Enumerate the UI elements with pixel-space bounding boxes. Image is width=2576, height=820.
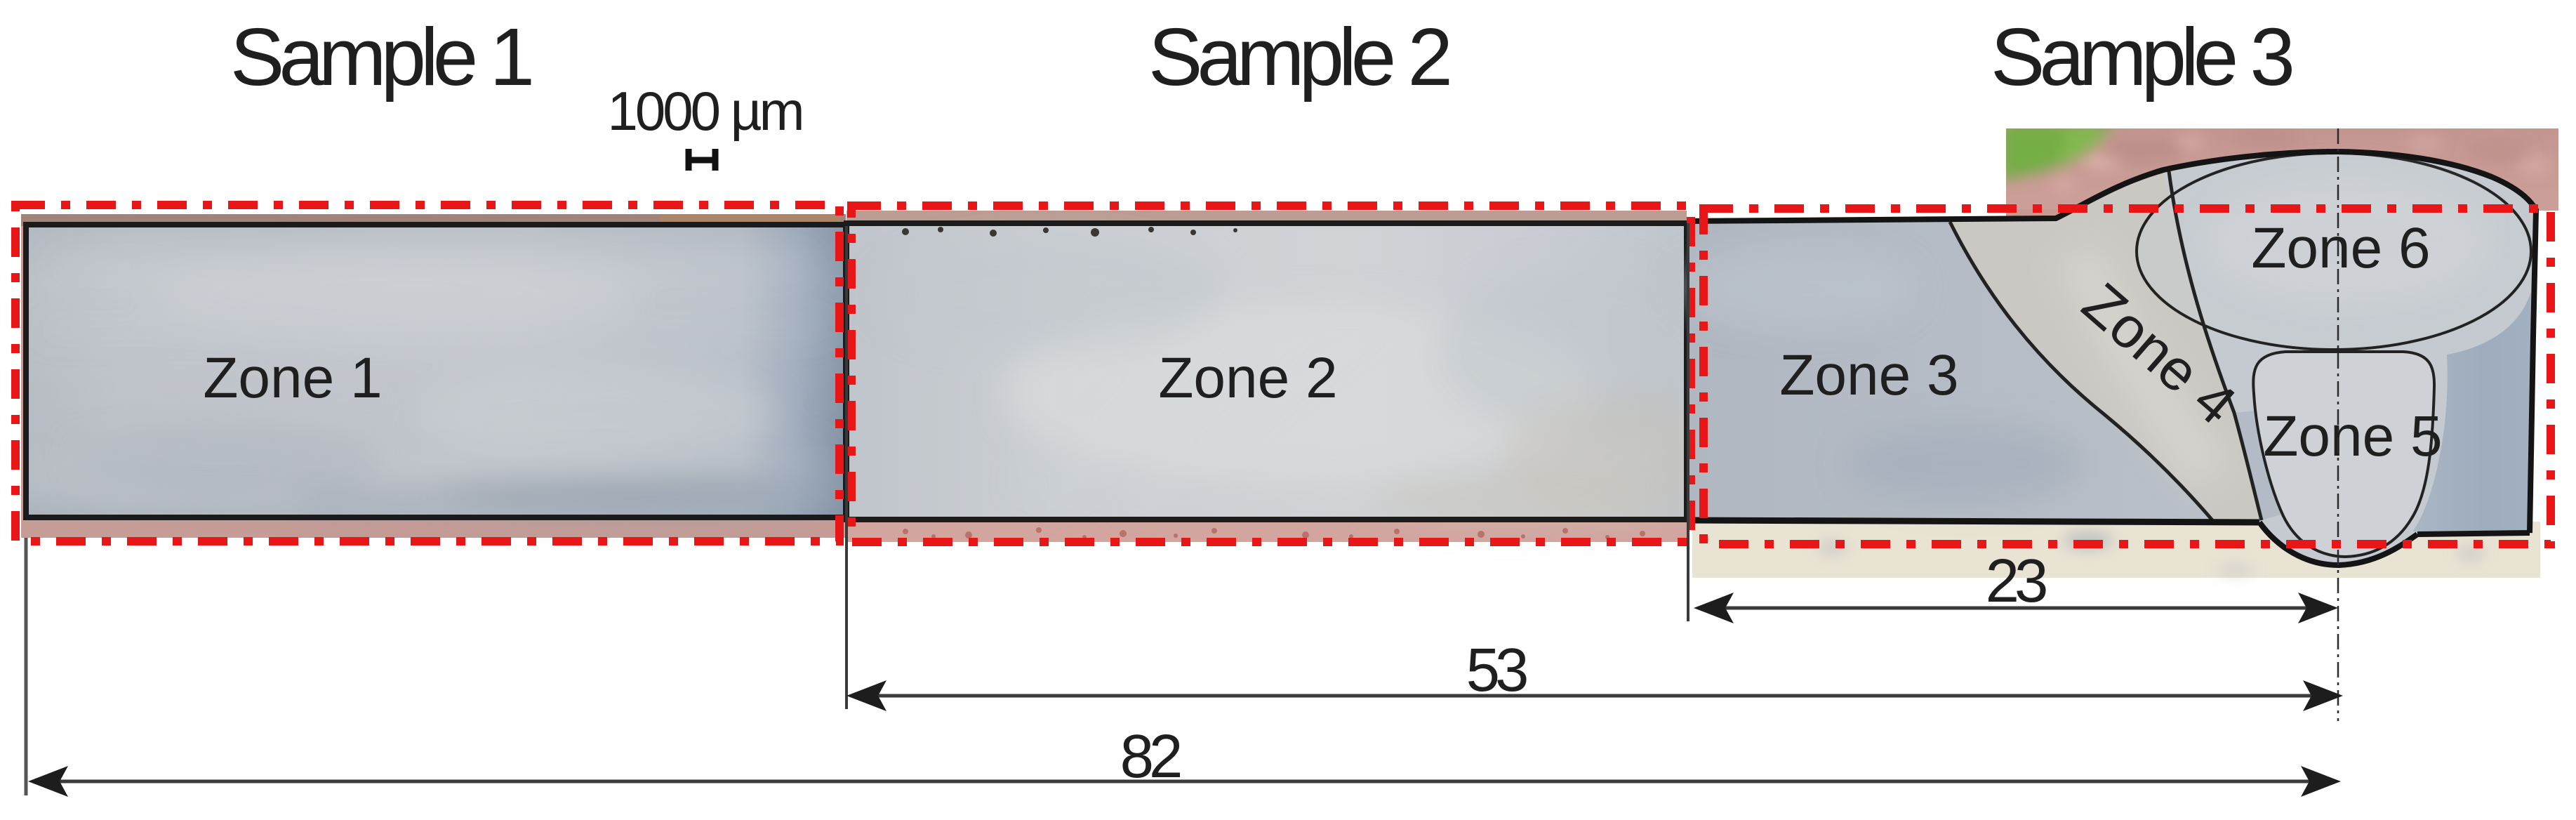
svg-text:82: 82 [1120, 722, 1181, 791]
svg-text:23: 23 [1986, 547, 2046, 615]
svg-text:Sample 1: Sample 1 [230, 11, 531, 102]
svg-text:Zone 2: Zone 2 [1158, 346, 1337, 410]
svg-text:1000 µm: 1000 µm [607, 80, 802, 142]
svg-text:Sample 3: Sample 3 [1991, 11, 2292, 102]
svg-text:Sample 2: Sample 2 [1148, 11, 1449, 102]
svg-text:Zone 3: Zone 3 [1779, 343, 1958, 407]
svg-text:Zone 1: Zone 1 [203, 346, 382, 410]
svg-text:Zone 5: Zone 5 [2263, 404, 2442, 468]
svg-text:Zone 6: Zone 6 [2251, 216, 2430, 280]
svg-text:53: 53 [1466, 636, 1527, 704]
